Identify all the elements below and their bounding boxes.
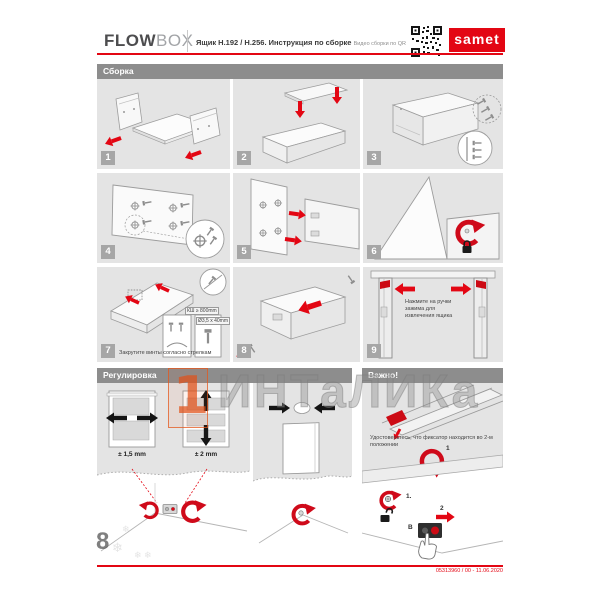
black-arrow-icon: [269, 403, 290, 414]
important-panel: Удостоверьтесь, что фиксатор находится в…: [362, 383, 503, 560]
drawing-adjustment-side: [97, 383, 250, 560]
snowflake-decoration: ❄: [112, 540, 123, 556]
assembly-section-header: Сборка: [97, 64, 503, 79]
red-arrow-icon: [451, 283, 471, 295]
drawing-step-1: [97, 79, 230, 169]
footer-rule: [97, 565, 503, 567]
step-number-badge: 5: [237, 245, 251, 259]
qr-caption: Видео сборки по QR: [338, 41, 406, 47]
important-note: Удостоверьтесь, что фиксатор находится в…: [370, 435, 498, 449]
assembly-step-4: 4: [97, 173, 230, 263]
step-9-note: Нажмите на ручки зажима для извлечения я…: [405, 299, 465, 320]
drawing-step-8: [233, 267, 360, 362]
marker-step-2: 2: [440, 505, 444, 512]
samet-logo: samet: [449, 28, 505, 52]
snowflake-decoration: ❄: [122, 524, 130, 535]
red-arrow-icon: [288, 208, 306, 220]
snowflake-decoration: ❄ ❄: [134, 550, 152, 561]
drawing-step-2: [233, 79, 360, 169]
step-number-badge: 9: [367, 344, 381, 358]
document-code: 05313960 / 00 - 11.06.2020: [436, 568, 503, 574]
step-number-badge: 1: [101, 151, 115, 165]
screw-size-label: Ø3,5 x 40mm: [196, 317, 230, 325]
watermark-fragment: 8: [96, 528, 109, 556]
step-number-badge: 8: [237, 344, 251, 358]
adjustment-panel-front: [253, 383, 352, 560]
step-7-caption: Закрутите винты согласно стрелкам: [119, 350, 224, 357]
cabinet-width-label: КШ ≥ 800mm: [185, 307, 219, 315]
red-arrow-icon: [103, 133, 122, 148]
drawing-step-6: [363, 173, 503, 263]
assembly-step-7: КШ ≥ 800mm Ø3,5 x 40mm Закрутите винты с…: [97, 267, 230, 362]
drawing-step-5: [233, 173, 360, 263]
drawing-step-3: [363, 79, 503, 169]
assembly-step-3: 3: [363, 79, 503, 169]
instruction-page: FLOWBOX Ящик H.192 / H.256. Инструкция п…: [0, 0, 600, 600]
tolerance-height-label: ± 2 mm: [180, 451, 232, 458]
red-arrow-icon: [295, 101, 305, 118]
step-number-badge: 6: [367, 245, 381, 259]
step-number-badge: 4: [101, 245, 115, 259]
step-number-badge: 7: [101, 344, 115, 358]
adjustment-panel-side: ± 1,5 mm ± 2 mm: [97, 383, 250, 560]
marker-step-1: 1.: [406, 493, 411, 500]
marker-arrow-1: 1: [446, 445, 450, 452]
flowbox-logo: FLOWBOX: [104, 31, 193, 51]
assembly-step-6: 6: [363, 173, 503, 263]
black-arrow-icon: [314, 403, 335, 414]
assembly-step-5: 5: [233, 173, 360, 263]
header-divider: [187, 30, 188, 52]
red-arrow-icon: [395, 283, 415, 295]
header-rule: [97, 53, 503, 55]
brand-bold: FLOW: [104, 31, 156, 50]
drawing-adjustment-front: [253, 383, 352, 560]
assembly-step-8: 8: [233, 267, 360, 362]
red-arrow-icon: [183, 147, 202, 162]
step-number-badge: 2: [237, 151, 251, 165]
marker-unit-b: B: [408, 524, 413, 531]
tolerance-side-label: ± 1,5 mm: [106, 451, 158, 458]
assembly-step-9: Нажмите на ручки зажима для извлечения я…: [363, 267, 503, 362]
step-number-badge: 3: [367, 151, 381, 165]
drawing-step-4: [97, 173, 230, 263]
adjustment-section-header: Регулировка: [97, 368, 352, 383]
important-section-header: Важно!: [362, 368, 503, 383]
assembly-step-2: 2: [233, 79, 360, 169]
assembly-step-1: 1: [97, 79, 230, 169]
drawing-important: [362, 383, 503, 560]
